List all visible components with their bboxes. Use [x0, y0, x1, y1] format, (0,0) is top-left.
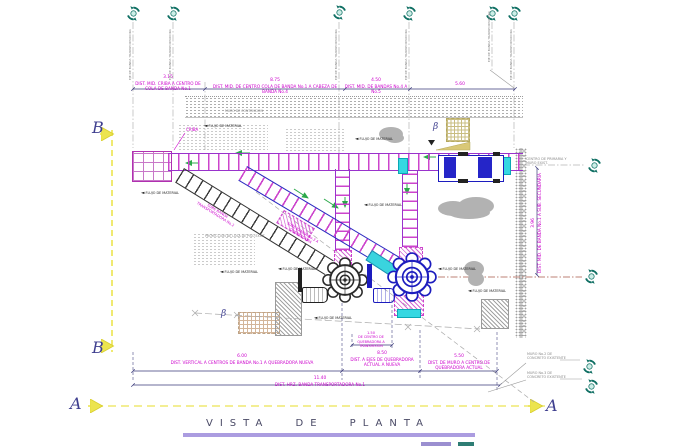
axis-label: EJE DE BANDA TRANSPORTADORA: [335, 29, 339, 80]
chute-arrow-icon: [428, 140, 435, 146]
feeder-truck-block: [444, 157, 456, 178]
rotation-marker-icon: [332, 5, 347, 20]
slab-projection-label: PROYECCION DE LOSA DE PISO EXIST.: [205, 234, 265, 238]
flow-arrow-icon: ◄: [438, 267, 441, 272]
stockpile: [468, 272, 484, 286]
rotation-marker-icon: [126, 6, 141, 21]
axis-label: EJE DE BANDA TRANSPORTADORA: [405, 29, 409, 80]
dimension-5-60: 5.60: [440, 82, 480, 88]
flow-arrow-icon: ◄: [204, 124, 207, 129]
feeder-truck-block: [478, 157, 492, 178]
flow-label: ◄ FLUJO DE MATERIAL: [468, 289, 506, 294]
truck-wheel: [493, 179, 500, 183]
truck-wheel: [458, 152, 468, 156]
dimension-1-50: 1.50DE CENTRO DE QUEBRADORA A TRANSMISIO…: [346, 331, 396, 348]
dimension-4-50: 4.50DIST. MID. DE BANDAS No.4 A No.5: [344, 78, 408, 94]
section-letter-b-top: B: [92, 118, 104, 137]
dimension-8-75: 8.75DIST. MID. DE CENTRO COLA DE BANDA N…: [206, 78, 344, 94]
rotation-marker-icon: [166, 6, 181, 21]
wall-3-label: MURO No.3 DE CONCRETO EXISTENTE: [527, 371, 571, 380]
motor-existing: [302, 287, 328, 303]
flow-arrow-icon: ◄: [278, 267, 281, 272]
primary-center-label: CENTRO DE PRIMARIA Y MURO EXIST.: [526, 157, 578, 166]
stockpile: [448, 206, 490, 219]
rotation-marker-icon: [584, 269, 599, 284]
rotation-marker-icon: [402, 6, 417, 21]
axis-label: EJE DE BANDA TRANSPORTADORA: [510, 29, 514, 80]
title-underline-bar: [183, 433, 475, 437]
dimension-6-00: 6.00DIST. VERTICAL A CENTROS DE BANDA No…: [158, 354, 326, 365]
plan-view-drawing: 3.15DIST. MID. CRIBA A CENTRO DE COLA DE…: [0, 0, 682, 448]
flow-label: ◄ FLUJO DE MATERIAL: [278, 267, 316, 272]
section-letter-b-bottom: B: [92, 338, 104, 357]
revision-mark: β: [433, 122, 438, 132]
title-accent-bar-purple: [421, 442, 451, 446]
title-accent-bar-teal: [458, 442, 474, 446]
truck-wheel: [493, 152, 500, 156]
section-letter-a-right: A: [546, 396, 558, 415]
criba-leader-line: [174, 133, 185, 150]
section-line-b: [100, 130, 112, 352]
flow-arrow-icon: ◄: [355, 137, 358, 142]
flow-label: ◄ FLUJO DE MATERIAL: [141, 191, 179, 196]
flow-label: ◄ FLUJO DE MATERIAL: [204, 124, 242, 129]
rotation-marker-icon: [584, 379, 599, 394]
rotation-marker-icon: [587, 158, 602, 173]
flow-arrow-icon: ◄: [468, 289, 471, 294]
criba-label: CRIBA: [186, 127, 198, 132]
axis-label: EJE DE BANDA TRANSPORTADORA: [129, 29, 133, 80]
axis-label: EJE DE BANDA TRANSPORTADORA: [169, 29, 173, 80]
dimension-8-50: 8.50DIST. A EJES DE QUEBRADORA ACTUAL A …: [344, 351, 420, 367]
flow-label: ◄ FLUJO DE MATERIAL: [438, 267, 476, 272]
section-letter-a-left: A: [70, 394, 82, 413]
axis-label: EJE DE BANDA TRANSPORTADORA: [488, 11, 492, 62]
crusher-existing-icon: [322, 257, 368, 303]
grid-lines: [133, 22, 584, 170]
discharge-pulley: [397, 309, 421, 318]
belt-pulley: [398, 158, 408, 174]
motor-new: [373, 288, 395, 303]
dimension-3-96: 3.96DIST. MID. DE BANDA No.1 A SUB. SECU…: [531, 167, 542, 279]
conveyor-vertical-right: [402, 170, 418, 247]
dimension-11-40: 11.40DIST. HRZ. BANDA TRANSPORTADORA No.…: [268, 376, 372, 387]
flow-label: ◄ FLUJO DE MATERIAL: [355, 137, 393, 142]
dimension-5-50: 5.50DIST. DE MURO A CENTRO DE QUEBRADORA…: [420, 354, 498, 370]
tan-chute-wedge: [436, 142, 470, 150]
flow-arrow-icon: ◄: [141, 191, 144, 196]
flow-label: ◄ FLUJO DE MATERIAL: [364, 203, 402, 208]
retaining-wall-label: MURO DE CONTENCION: [225, 109, 263, 113]
wall-2-label: MURO No.2 DE CONCRETO EXISTENTE: [527, 352, 567, 361]
flow-arrow-icon: ◄: [220, 270, 223, 275]
flow-arrow-icon: ◄: [364, 203, 367, 208]
flow-arrow-icon: ◄: [314, 316, 317, 321]
rotation-marker-icon: [507, 6, 522, 21]
truck-wheel: [458, 179, 468, 183]
revision-mark: β: [221, 309, 226, 319]
rotation-marker-icon: [582, 359, 597, 374]
flow-label: ◄ FLUJO DE MATERIAL: [314, 316, 352, 321]
flow-label: ◄ FLUJO DE MATERIAL: [220, 270, 258, 275]
drawing-title: VISTA DE PLANTA: [206, 418, 430, 429]
drive-guard-new: [367, 264, 372, 288]
criba-screen: [132, 151, 172, 182]
